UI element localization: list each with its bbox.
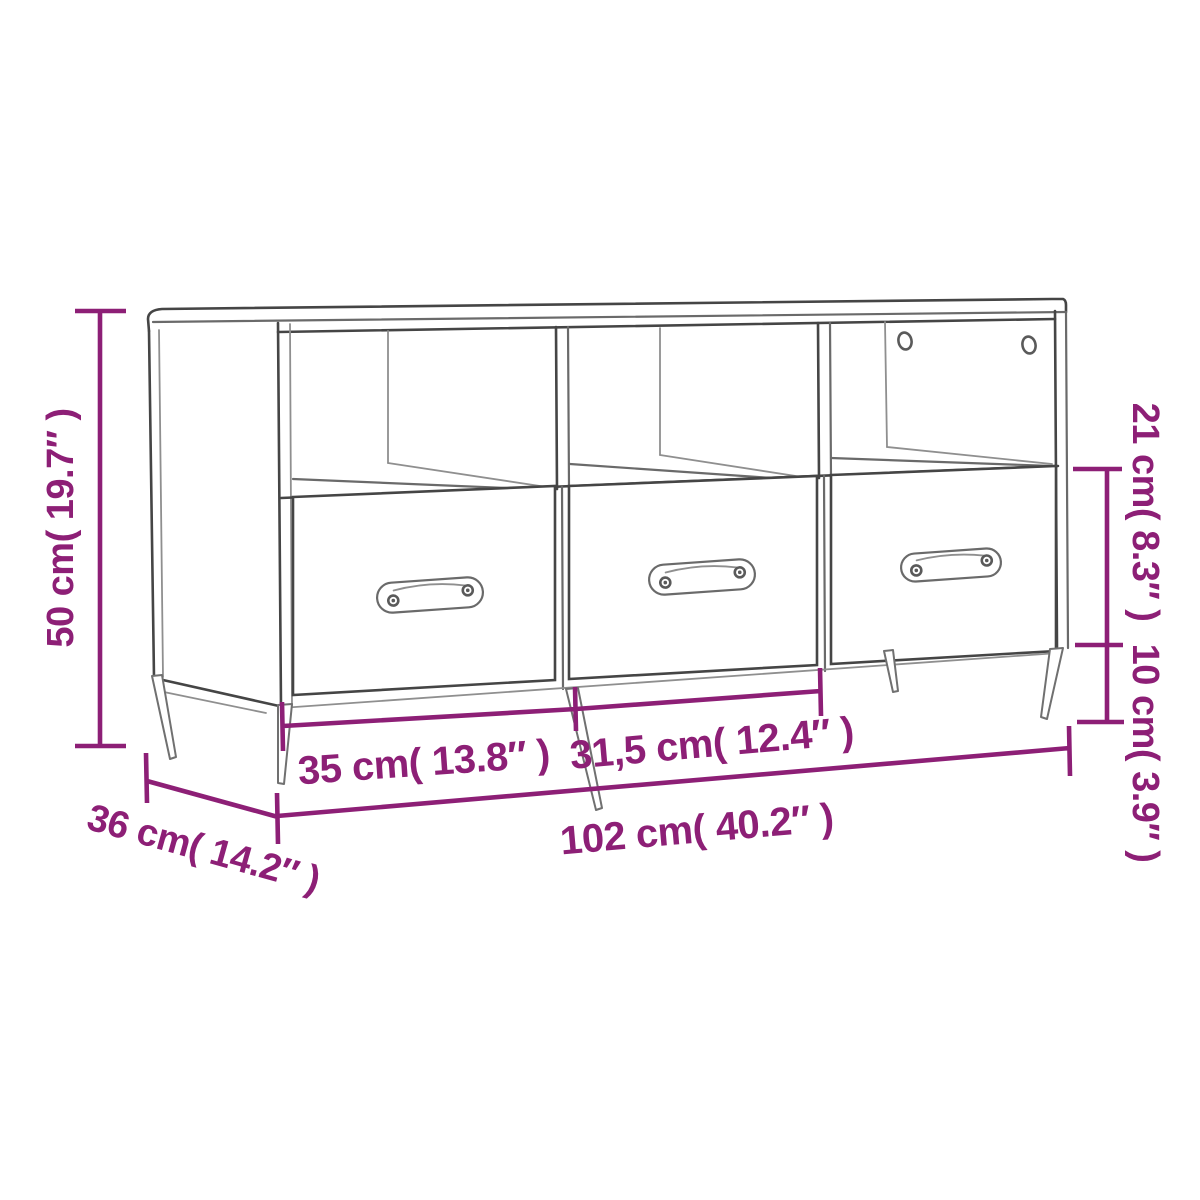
top-panel [148,299,1066,332]
dimension-height: 50 cm( 19.7″ ) [40,311,126,746]
dimension-height-line [75,311,126,746]
dimension-drawer-height-line [1073,469,1123,645]
cubby-2 [570,328,815,481]
leg-back-left [152,675,176,759]
dimension-drawer-height-label: 21 cm( 8.3″ ) [1124,403,1166,622]
dimension-depth-label: 36 cm( 14.2″ ) [83,797,325,902]
drawer-gap-1 [562,487,563,689]
leg-front-right [1041,648,1063,719]
furniture-dimension-diagram: 50 cm( 19.7″ ) 36 cm( 14.2″ ) 35 cm( 13.… [0,0,1200,1200]
dimension-leg-height-label: 10 cm( 3.9″ ) [1124,644,1166,863]
cubby-divider-2 [818,323,831,478]
left-side-panel [149,323,292,713]
back-panel-screw-hole-1 [897,331,913,350]
drawer-gap-2 [824,476,825,671]
dimension-height-label: 50 cm( 19.7″ ) [40,408,82,647]
drawer-handle-3 [900,548,1002,583]
dimension-leg-height: 10 cm( 3.9″ ) [1077,644,1166,863]
back-panel-screw-hole-2 [1021,335,1037,354]
dimension-drawer-width-left: 35 cm( 13.8″ ) [282,687,576,793]
dimension-depth: 36 cm( 14.2″ ) [83,753,325,902]
drawer-handle-2 [648,558,756,595]
drawer-handle-1 [376,576,484,613]
cubby-divider-1 [556,327,569,489]
product-diagram-svg: 50 cm( 19.7″ ) 36 cm( 14.2″ ) 35 cm( 13.… [0,0,1200,1200]
cubby-3 [831,322,1052,466]
dimension-drawer-height: 21 cm( 8.3″ ) [1073,403,1166,645]
dimension-drawer-width-left-label: 35 cm( 13.8″ ) [296,732,551,793]
dimension-drawer-width-middle-label: 31,5 cm( 12.4″ ) [568,709,855,778]
dimension-leg-height-line [1077,645,1124,722]
cubby-1 [293,331,553,490]
